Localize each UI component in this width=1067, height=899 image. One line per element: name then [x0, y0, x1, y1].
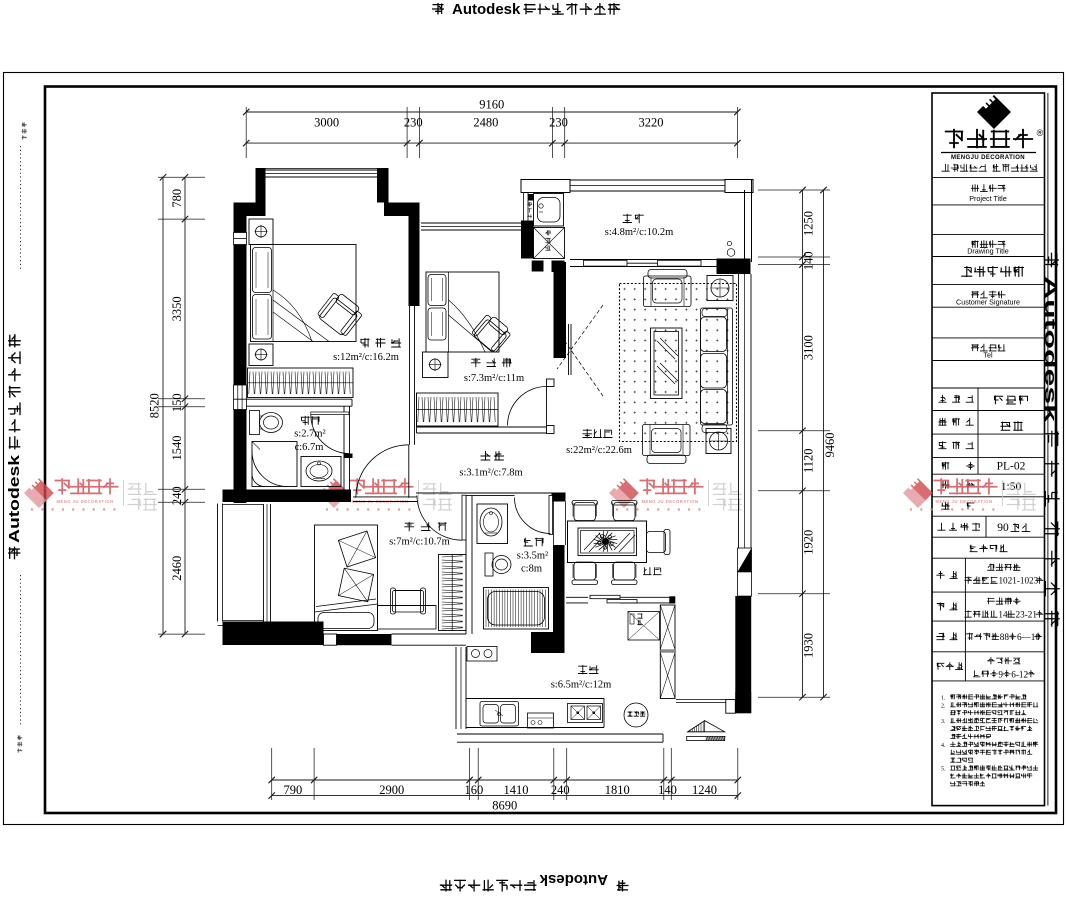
svg-text:MENG JU DECORATION: MENG JU DECORATION: [641, 499, 698, 504]
svg-text:9160: 9160: [479, 98, 504, 112]
svg-text:Project Title: Project Title: [969, 194, 1007, 203]
svg-text:2460: 2460: [170, 556, 184, 581]
svg-text:s:3.5m²: s:3.5m²: [517, 551, 548, 562]
svg-text:2.: 2.: [941, 703, 946, 709]
svg-text:1930: 1930: [802, 633, 816, 658]
svg-text:s:12m²/c:16.2m: s:12m²/c:16.2m: [333, 352, 399, 363]
svg-text:240: 240: [170, 486, 184, 505]
svg-text:160: 160: [465, 783, 484, 797]
svg-text:s:4.8m²/c:10.2m: s:4.8m²/c:10.2m: [605, 227, 673, 238]
svg-text:140: 140: [658, 783, 677, 797]
svg-text:230: 230: [549, 116, 568, 130]
svg-text:3100: 3100: [802, 335, 816, 360]
svg-text:1240: 1240: [692, 783, 717, 797]
svg-text:8520: 8520: [148, 393, 162, 418]
svg-text:150: 150: [170, 393, 184, 412]
svg-text:8690: 8690: [492, 799, 517, 813]
svg-text:1021-1023: 1021-1023: [998, 576, 1038, 586]
svg-text:3350: 3350: [170, 296, 184, 321]
svg-text:5.: 5.: [941, 767, 946, 773]
svg-text:1810: 1810: [605, 783, 630, 797]
svg-text:Autodesk: Autodesk: [539, 871, 608, 888]
svg-text:1120: 1120: [802, 448, 816, 473]
svg-text:2480: 2480: [473, 116, 498, 130]
svg-text:90: 90: [997, 522, 1009, 534]
svg-text:3000: 3000: [314, 116, 339, 130]
svg-text:Tel: Tel: [983, 351, 993, 360]
svg-text:6-12: 6-12: [1011, 669, 1028, 679]
svg-text:230: 230: [404, 116, 423, 130]
svg-text:MENGJU DECORATION: MENGJU DECORATION: [951, 155, 1025, 161]
svg-text:1540: 1540: [170, 436, 184, 461]
svg-text:®: ®: [1037, 128, 1044, 138]
svg-text:3220: 3220: [639, 116, 664, 130]
svg-text:s:22m²/c:22.6m: s:22m²/c:22.6m: [566, 445, 632, 456]
svg-text:23-21: 23-21: [1016, 610, 1038, 620]
svg-text:1410: 1410: [504, 783, 529, 797]
svg-text:1.: 1.: [941, 695, 946, 701]
svg-text:s:2.7m²: s:2.7m²: [294, 429, 325, 440]
svg-text:1250: 1250: [802, 211, 816, 236]
svg-text:Drawing Title: Drawing Title: [967, 247, 1009, 256]
svg-text:88: 88: [1000, 632, 1010, 642]
svg-text:c:8m: c:8m: [521, 564, 542, 575]
svg-text:1920: 1920: [802, 530, 816, 555]
svg-text:790: 790: [284, 783, 303, 797]
svg-text:Autodesk: Autodesk: [6, 454, 23, 543]
svg-text:MENG JU DECORATION: MENG JU DECORATION: [935, 499, 992, 504]
svg-text:PL-02: PL-02: [997, 461, 1026, 473]
svg-text:MENG JU DECORATION: MENG JU DECORATION: [56, 499, 113, 504]
svg-text:780: 780: [170, 189, 184, 208]
svg-text:9460: 9460: [823, 433, 837, 458]
svg-text:14: 14: [998, 610, 1008, 620]
svg-text:Autodesk: Autodesk: [452, 1, 521, 18]
svg-text:s:7.3m²/c:11m: s:7.3m²/c:11m: [464, 373, 524, 384]
svg-text:240: 240: [551, 783, 570, 797]
svg-text:s:3.1m²/c:7.8m: s:3.1m²/c:7.8m: [459, 468, 522, 479]
svg-text:2900: 2900: [379, 783, 404, 797]
svg-text:3.: 3.: [941, 719, 946, 725]
svg-text:9: 9: [998, 669, 1003, 679]
svg-text:s:6.5m²/c:12m: s:6.5m²/c:12m: [551, 680, 612, 691]
svg-text:4.: 4.: [941, 743, 946, 749]
svg-text:140: 140: [802, 251, 816, 270]
svg-text:Customer Signature: Customer Signature: [956, 298, 1020, 307]
svg-text:c:6.7m: c:6.7m: [295, 442, 324, 453]
svg-text:s:7m²/c:10.7m: s:7m²/c:10.7m: [389, 537, 450, 548]
